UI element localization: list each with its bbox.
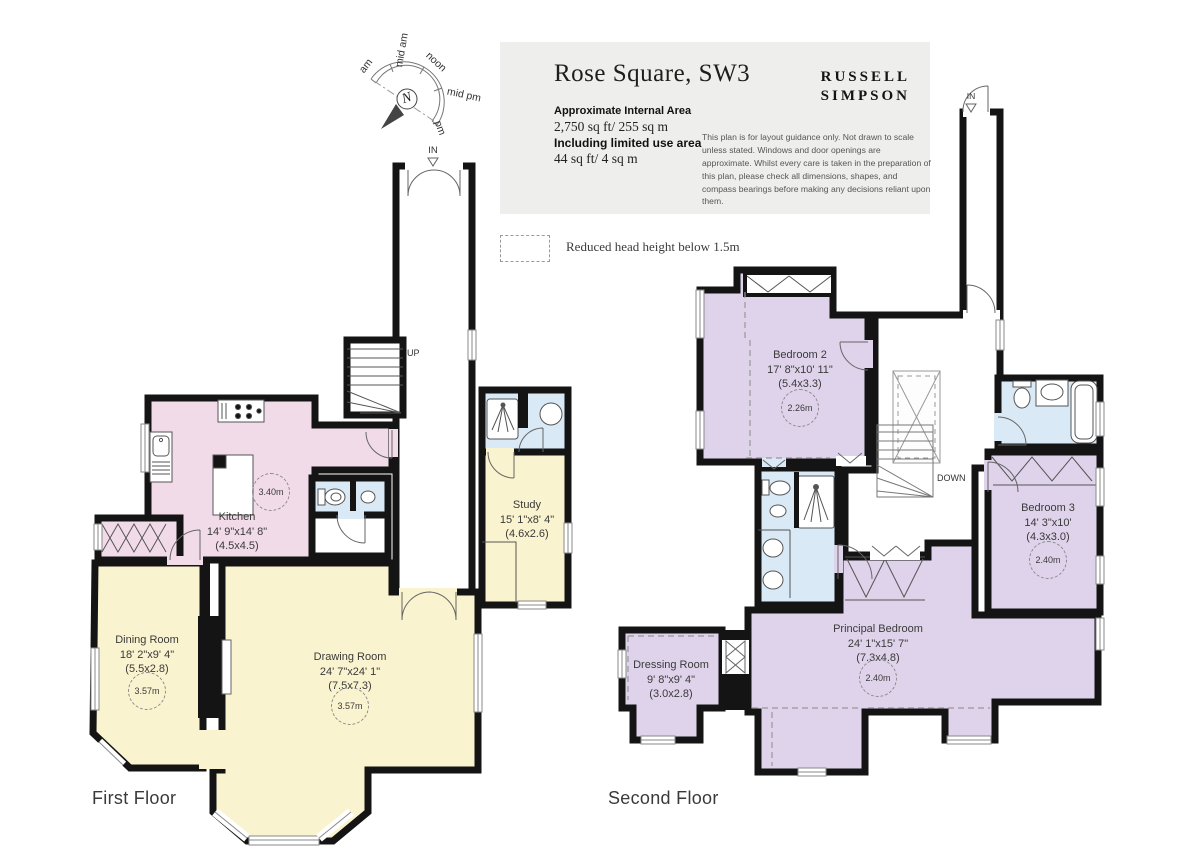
room-dims: 24' 1"x15' 7" (833, 637, 923, 652)
room-dims: 14' 3"x10' (1021, 516, 1075, 531)
kitchen-sink (150, 432, 172, 482)
floorplan-page: Rose Square, SW3 RUSSELL SIMPSON Approxi… (0, 0, 1200, 848)
room-name: Kitchen (207, 510, 267, 525)
room-name: Study (500, 498, 554, 513)
room-name: Bedroom 3 (1021, 501, 1075, 516)
entrance-label-second: IN (967, 91, 976, 101)
entrance-hall-first (396, 166, 472, 592)
dressing-principal-door (722, 630, 749, 710)
room-dims: 17' 8"x10' 11" (767, 363, 833, 378)
room-dims: 18' 2"x9' 4" (115, 648, 179, 663)
stairs-up-label: UP (407, 348, 420, 358)
bedroom2-label: Bedroom 2 17' 8"x10' 11" (5.4x3.3) (767, 348, 833, 392)
drawing-ceiling-height: 3.57m (331, 687, 369, 725)
kitchen-ceiling-height: 3.40m (252, 473, 290, 511)
reduced-head-height-swatch (500, 235, 550, 262)
brand-line-1: RUSSELL (821, 68, 910, 87)
dining-ceiling-height: 3.57m (128, 672, 166, 710)
room-name: Dining Room (115, 633, 179, 648)
dressing-room-label: Dressing Room 9' 8"x9' 4" (3.0x2.8) (633, 658, 709, 702)
limited-area-value: 44 sq ft/ 4 sq m (554, 151, 638, 167)
bedroom3-label: Bedroom 3 14' 3"x10' (4.3x3.0) (1021, 501, 1075, 545)
stairs-down-label: DOWN (937, 473, 966, 483)
inner-lobby (312, 515, 388, 556)
room-metric: (3.0x2.8) (633, 687, 709, 702)
room-metric: (4.6x2.6) (500, 527, 554, 542)
brand-line-2: SIMPSON (821, 87, 910, 106)
room-name: Drawing Room (314, 650, 387, 665)
principal-ceiling-height: 2.40m (859, 659, 897, 697)
room-dims: 9' 8"x9' 4" (633, 673, 709, 688)
kitchen-hob (218, 400, 264, 422)
entrance-label-first: IN (428, 145, 438, 156)
room-dims: 24' 7"x24' 1" (314, 665, 387, 680)
page-title: Rose Square, SW3 (554, 60, 750, 88)
compass-needle-icon (381, 104, 404, 129)
header-panel: Rose Square, SW3 RUSSELL SIMPSON Approxi… (500, 42, 930, 214)
room-name: Bedroom 2 (767, 348, 833, 363)
room-dims: 14' 9"x14' 8" (207, 525, 267, 540)
bedroom2-ceiling-height: 2.26m (781, 389, 819, 427)
shower-wall-stub (518, 388, 528, 428)
area-value: 2,750 sq ft/ 255 sq m (554, 119, 668, 135)
room-name: Principal Bedroom (833, 622, 923, 637)
ensuite-divider (794, 472, 799, 528)
bedroom2-wardrobe (745, 273, 833, 295)
limited-area-heading: Including limited use area (554, 136, 701, 150)
kitchen-island (213, 455, 253, 515)
kitchen-label: Kitchen 14' 9"x14' 8" (4.5x4.5) (207, 510, 267, 554)
room-metric: (4.5x4.5) (207, 539, 267, 554)
room-name: Dressing Room (633, 658, 709, 673)
study-label: Study 15' 1"x8' 4" (4.6x2.6) (500, 498, 554, 542)
brand-logo: RUSSELL SIMPSON (821, 68, 910, 106)
first-floor-label: First Floor (92, 788, 176, 809)
disclaimer-text: This plan is for layout guidance only. N… (702, 131, 932, 208)
legend-label: Reduced head height below 1.5m (566, 239, 740, 255)
area-heading: Approximate Internal Area (554, 105, 691, 117)
room-dims: 15' 1"x8' 4" (500, 513, 554, 528)
wc-divider-wall (350, 478, 356, 515)
dining-room-label: Dining Room 18' 2"x9' 4" (5.5x2.8) (115, 633, 179, 677)
bedroom3-ceiling-height: 2.40m (1029, 541, 1067, 579)
second-floor-label: Second Floor (608, 788, 719, 809)
